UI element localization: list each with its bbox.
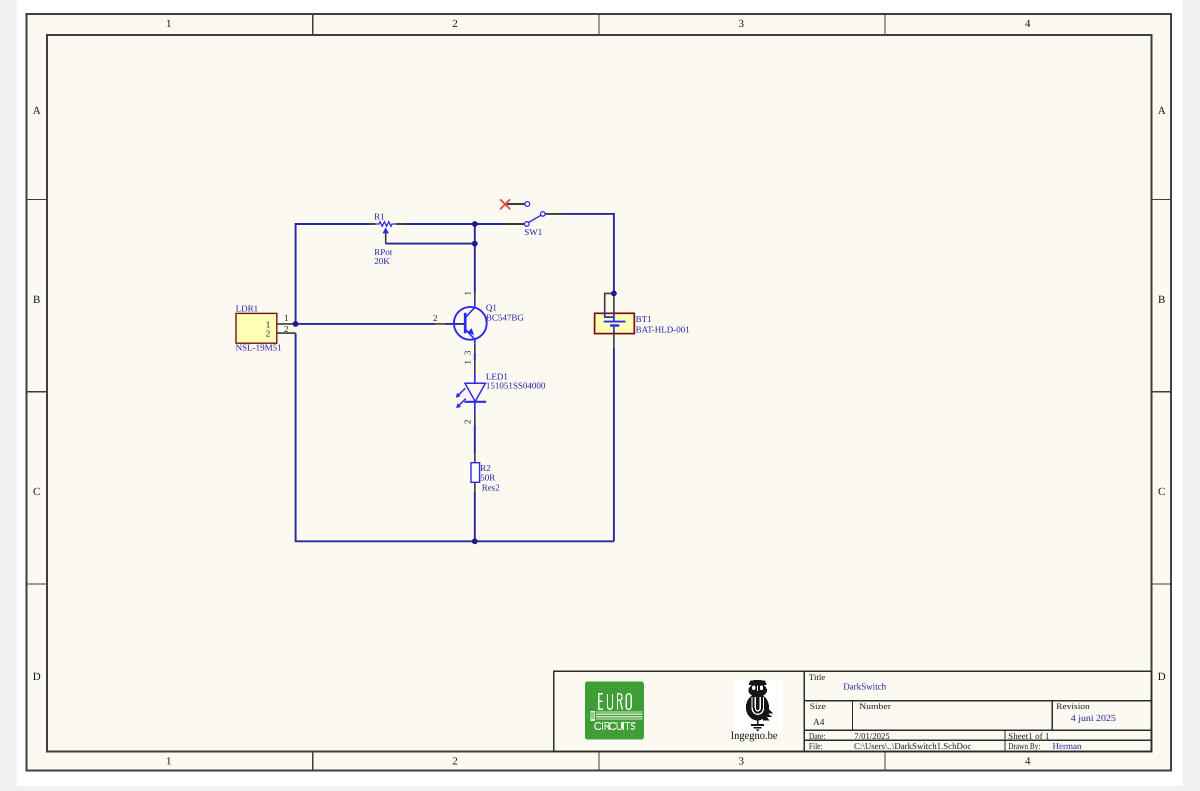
svg-text:LDR1: LDR1 [236,303,259,313]
svg-text:NSL-19M51: NSL-19M51 [236,342,282,352]
svg-text:Revision: Revision [1056,702,1090,711]
svg-text:Size: Size [810,702,826,711]
svg-text:Ingegno.be: Ingegno.be [731,730,778,742]
svg-text:1: 1 [463,291,473,296]
svg-text:4: 4 [1025,756,1031,768]
svg-text:20K: 20K [374,256,390,266]
svg-text:BAT-HLD-001: BAT-HLD-001 [636,325,690,335]
svg-text:Date:: Date: [809,731,826,741]
svg-text:C: C [33,486,40,498]
svg-text:4: 4 [1025,18,1031,30]
svg-text:B: B [33,294,40,306]
svg-text:Res2: Res2 [482,483,500,493]
svg-text:2: 2 [452,18,458,30]
svg-text:A4: A4 [813,718,825,728]
svg-text:2: 2 [284,324,289,334]
svg-text:D: D [1158,671,1166,683]
svg-text:7/01/2025: 7/01/2025 [854,731,890,741]
svg-text:2: 2 [266,329,271,339]
svg-text:50R: 50R [480,472,495,482]
svg-text:Title: Title [809,673,826,682]
svg-text:C:\Users\..\DarkSwitch1.SchDoc: C:\Users\..\DarkSwitch1.SchDoc [854,741,971,751]
svg-text:A: A [33,105,41,117]
svg-text:2: 2 [433,313,438,323]
svg-text:B: B [1158,294,1165,306]
svg-text:Drawn By:: Drawn By: [1008,741,1040,751]
svg-text:1: 1 [284,313,289,323]
svg-text:SW1: SW1 [524,227,542,237]
svg-text:1: 1 [463,360,473,365]
svg-text:A: A [1158,105,1166,117]
svg-text:1: 1 [166,18,172,30]
svg-text:Q1: Q1 [486,302,497,312]
svg-text:Herman: Herman [1053,741,1082,751]
svg-text:BC547BG: BC547BG [486,313,525,323]
svg-text:151051SS04000: 151051SS04000 [486,381,546,391]
svg-text:1: 1 [166,756,172,768]
svg-text:2: 2 [452,756,458,768]
svg-text:DarkSwitch: DarkSwitch [843,681,886,691]
svg-text:3: 3 [463,350,473,355]
svg-text:3: 3 [739,756,745,768]
svg-text:C: C [1158,486,1165,498]
svg-text:2: 2 [463,420,473,425]
svg-text:File:: File: [809,741,823,751]
svg-text:Number: Number [859,702,891,711]
svg-text:3: 3 [739,18,745,30]
svg-text:4 juni 2025: 4 juni 2025 [1071,714,1116,724]
svg-text:BT1: BT1 [636,314,652,324]
svg-text:R1: R1 [374,212,385,222]
svg-text:D: D [33,671,41,683]
svg-text:Sheet1 of 1: Sheet1 of 1 [1008,731,1049,741]
